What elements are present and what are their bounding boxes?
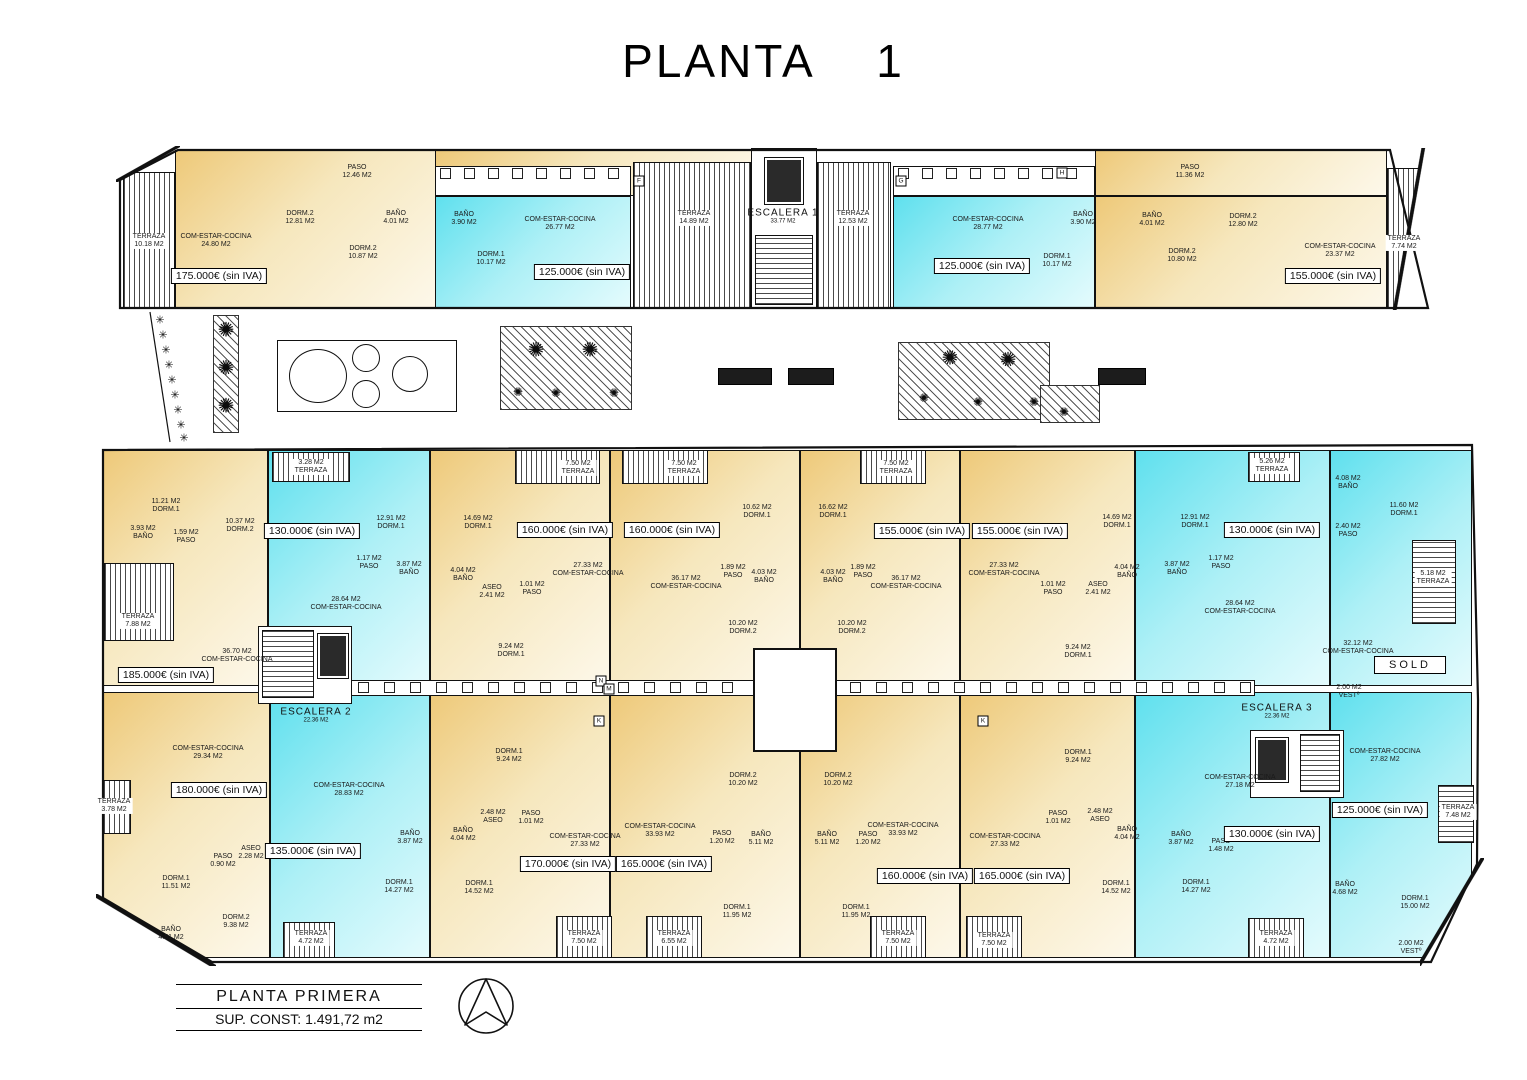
entrance-letter: G: [896, 176, 907, 187]
kitchen-unit: [536, 168, 547, 179]
legend-built-area: SUP. CONST: 1.491,72 m2: [176, 1009, 422, 1031]
kitchen-unit: [922, 168, 933, 179]
entrance-letter: H: [1057, 168, 1068, 179]
room-label: BAÑO 3.90 M2: [451, 211, 476, 227]
price-tag: 130.000€ (sin IVA): [1224, 522, 1320, 538]
elevator: [765, 158, 803, 204]
room-label: DORM.1 15.00 M2: [1400, 895, 1429, 911]
room-label: 4.03 M2 BAÑO: [820, 569, 845, 585]
kitchen-unit: [644, 682, 655, 693]
room-label: DORM.2 10.80 M2: [1167, 248, 1196, 264]
kitchen-unit: [850, 682, 861, 693]
price-tag: 165.000€ (sin IVA): [616, 856, 712, 872]
plant-icon: ✺: [919, 391, 929, 405]
room-label: 11.60 M2 DORM.1: [1390, 502, 1419, 518]
swing-toy: [289, 349, 347, 403]
price-tag: 155.000€ (sin IVA): [1285, 268, 1381, 284]
room-label: 1.01 M2 PASO: [519, 581, 544, 597]
room-label: DORM.1 10.17 M2: [1042, 253, 1071, 269]
room-label: TERRAZA 7.48 M2: [1440, 804, 1477, 820]
terrace-hatch: [817, 162, 891, 308]
kitchen-unit: [954, 682, 965, 693]
room-label: 36.70 M2 COM-ESTAR-COCINA: [201, 648, 272, 664]
stair-treads: [1300, 734, 1340, 792]
room-label: COM-ESTAR-COCINA 29.34 M2: [172, 745, 243, 761]
price-tag: 135.000€ (sin IVA): [265, 843, 361, 859]
room-label: BAÑO 4.01 M2: [383, 210, 408, 226]
room-label: BAÑO 5.11 M2: [749, 831, 774, 847]
price-tag: 160.000€ (sin IVA): [517, 522, 613, 538]
plant-icon: ✺: [582, 338, 599, 363]
bench: [788, 368, 834, 385]
room-label: DORM.1 9.24 M2: [495, 748, 522, 764]
room-label: 10.37 M2 DORM.2: [225, 518, 254, 534]
stair-area: 33.77 M2: [747, 219, 818, 225]
kitchen-unit: [1240, 682, 1251, 693]
kitchen-unit: [608, 168, 619, 179]
room-label: BAÑO 5.11 M2: [815, 831, 840, 847]
kitchen-unit: [540, 682, 551, 693]
kitchen-unit: [1084, 682, 1095, 693]
room-label: DORM.1 14.52 M2: [464, 880, 493, 896]
room-label: 4.08 M2 BAÑO: [1335, 475, 1360, 491]
price-tag: 170.000€ (sin IVA): [520, 856, 616, 872]
room-label: DORM.1 14.52 M2: [1101, 880, 1130, 896]
room-label: BAÑO 3.87 M2: [397, 830, 422, 846]
tree-icon: ✳: [155, 314, 164, 327]
tree-icon: ✳: [158, 329, 167, 342]
apartment-block: [270, 692, 430, 958]
floor-plan: TERRAZA 10.18 M2COM-ESTAR-COCINA 24.80 M…: [0, 0, 1527, 1080]
room-label: 27.33 M2 COM-ESTAR-COCINA: [552, 562, 623, 578]
room-label: COM-ESTAR-COCINA 27.33 M2: [549, 833, 620, 849]
entrance-letter: F: [634, 176, 645, 187]
room-label: TERRAZA 10.18 M2: [131, 233, 168, 249]
kitchen-unit: [928, 682, 939, 693]
courtyard: [753, 648, 837, 752]
room-label: PASO 1.01 M2: [1045, 810, 1070, 826]
bench: [1098, 368, 1146, 385]
kitchen-unit: [384, 682, 395, 693]
room-label: TERRAZA 3.78 M2: [96, 798, 133, 814]
price-tag: 160.000€ (sin IVA): [624, 522, 720, 538]
room-label: TERRAZA 7.50 M2: [880, 930, 917, 946]
plant-icon: ✺: [528, 338, 545, 363]
room-label: 36.17 M2 COM-ESTAR-COCINA: [650, 575, 721, 591]
room-label: 36.17 M2 COM-ESTAR-COCINA: [870, 575, 941, 591]
kitchen-unit: [902, 682, 913, 693]
corner-cut: [116, 146, 180, 182]
room-label: BAÑO 3.90 M2: [1070, 211, 1095, 227]
price-tag: 165.000€ (sin IVA): [974, 868, 1070, 884]
kitchen-unit: [1058, 682, 1069, 693]
room-label: ASEO 2.41 M2: [479, 584, 504, 600]
plant-icon: ✺: [218, 394, 235, 419]
terrace-hatch: [104, 563, 174, 641]
plant-icon: ✺: [551, 386, 561, 400]
price-tag: 180.000€ (sin IVA): [171, 782, 267, 798]
room-label: BAÑO 4.04 M2: [1114, 826, 1139, 842]
kitchen-unit: [1214, 682, 1225, 693]
room-label: DORM.2 10.87 M2: [348, 245, 377, 261]
plant-icon: ✺: [218, 356, 235, 381]
floor-title: PLANTA 1: [0, 34, 1527, 88]
room-label: 14.69 M2 DORM.1: [1102, 514, 1131, 530]
elevator: [318, 634, 348, 678]
price-tag: 125.000€ (sin IVA): [534, 264, 630, 280]
room-label: 12.91 M2 DORM.1: [1180, 514, 1209, 530]
room-label: 12.91 M2 DORM.1: [376, 515, 405, 531]
kitchen-unit: [980, 682, 991, 693]
room-label: 7.50 M2 TERRAZA: [878, 460, 915, 476]
kitchen-unit: [1188, 682, 1199, 693]
room-label: COM-ESTAR-COCINA 24.80 M2: [180, 233, 251, 249]
kitchen-unit: [440, 168, 451, 179]
room-label: 5.26 M2 TERRAZA: [1254, 458, 1291, 474]
kitchen-unit: [618, 682, 629, 693]
price-tag: 185.000€ (sin IVA): [118, 667, 214, 683]
kitchen-unit: [488, 168, 499, 179]
room-label: BAÑO 4.04 M2: [450, 827, 475, 843]
room-label: 3.87 M2 BAÑO: [396, 561, 421, 577]
stair-label: ESCALERA 322.36 M2: [1241, 703, 1312, 720]
plant-icon: ✺: [973, 395, 983, 409]
kitchen-unit: [1018, 168, 1029, 179]
kitchen-unit: [488, 682, 499, 693]
price-tag: 155.000€ (sin IVA): [874, 523, 970, 539]
room-label: BAÑO 4.01 M2: [1139, 212, 1164, 228]
room-label: 2.40 M2 PASO: [1335, 523, 1360, 539]
tree-icon: ✳: [170, 389, 179, 402]
room-label: PASO 11.36 M2: [1176, 164, 1205, 180]
plant-icon: ✺: [609, 386, 619, 400]
room-label: PASO 12.46 M2: [342, 164, 371, 180]
tree-icon: ✳: [179, 432, 188, 445]
room-label: 28.64 M2 COM-ESTAR-COCINA: [310, 596, 381, 612]
room-label: PASO 1.01 M2: [518, 810, 543, 826]
kitchen-unit: [560, 168, 571, 179]
kitchen-unit: [1032, 682, 1043, 693]
room-label: COM-ESTAR-COCINA 28.83 M2: [313, 782, 384, 798]
spring-toy: [352, 380, 380, 408]
corner-cut: [96, 894, 216, 966]
room-label: DORM.1 11.51 M2: [162, 875, 191, 891]
entrance-letter: M: [604, 684, 615, 695]
entrance-letter: K: [594, 716, 605, 727]
plant-icon: ✺: [218, 318, 235, 343]
room-label: 32.12 M2 COM-ESTAR-COCINA: [1322, 640, 1393, 656]
room-label: DORM.1 10.17 M2: [476, 251, 505, 267]
price-tag: 155.000€ (sin IVA): [972, 523, 1068, 539]
kitchen-unit: [970, 168, 981, 179]
kitchen-unit: [410, 682, 421, 693]
kitchen-unit: [464, 168, 475, 179]
room-label: COM-ESTAR-COCINA 27.82 M2: [1349, 748, 1420, 764]
room-label: 27.33 M2 COM-ESTAR-COCINA: [968, 562, 1039, 578]
room-label: TERRAZA 7.50 M2: [976, 932, 1013, 948]
stair-label: ESCALERA 222.36 M2: [280, 707, 351, 724]
room-label: TERRAZA 4.72 M2: [293, 930, 330, 946]
room-label: 1.01 M2 PASO: [1040, 581, 1065, 597]
tree-icon: ✳: [161, 344, 170, 357]
kitchen-unit: [994, 168, 1005, 179]
room-label: DORM.2 9.38 M2: [222, 914, 249, 930]
planter: [1040, 385, 1100, 423]
plant-icon: ✺: [513, 385, 523, 399]
price-tag: 130.000€ (sin IVA): [1224, 826, 1320, 842]
room-label: TERRAZA 7.88 M2: [120, 613, 157, 629]
room-label: DORM.1 9.24 M2: [1064, 749, 1091, 765]
kitchen-unit: [1136, 682, 1147, 693]
kitchen-unit: [696, 682, 707, 693]
room-label: DORM.2 12.80 M2: [1228, 213, 1257, 229]
kitchen-unit: [876, 682, 887, 693]
kitchen-unit: [1162, 682, 1173, 693]
room-label: 4.04 M2 BAÑO: [1114, 564, 1139, 580]
room-label: ASEO 2.41 M2: [1085, 581, 1110, 597]
stair-label: ESCALERA 133.77 M2: [747, 208, 818, 225]
kitchen-unit: [670, 682, 681, 693]
roundabout-toy: [392, 356, 428, 392]
terrace-hatch: [633, 162, 751, 308]
stair-area: 22.36 M2: [280, 718, 351, 724]
spring-toy: [352, 344, 380, 372]
kitchen-unit: [462, 682, 473, 693]
room-label: COM-ESTAR-COCINA 33.93 M2: [867, 822, 938, 838]
tree-icon: ✳: [173, 404, 182, 417]
room-label: COM-ESTAR-COCINA 27.18 M2: [1204, 774, 1275, 790]
sold-tag: SOLD: [1374, 656, 1446, 674]
room-label: PASO 1.20 M2: [709, 830, 734, 846]
price-tag: 130.000€ (sin IVA): [264, 523, 360, 539]
hall-block: [1095, 150, 1387, 196]
room-label: 1.17 M2 PASO: [1208, 555, 1233, 571]
bench: [718, 368, 772, 385]
kitchen-unit: [358, 682, 369, 693]
plant-icon: ✺: [1029, 395, 1039, 409]
legend: PLANTA PRIMERA SUP. CONST: 1.491,72 m2: [176, 984, 422, 1031]
room-label: 2.00 M2 VESTº: [1336, 684, 1361, 700]
room-label: 4.04 M2 BAÑO: [450, 567, 475, 583]
kitchen-unit: [514, 682, 525, 693]
room-label: DORM.1 11.95 M2: [723, 904, 752, 920]
room-label: TERRAZA 6.55 M2: [656, 930, 693, 946]
kitchen-unit: [512, 168, 523, 179]
tree-icon: ✳: [176, 419, 185, 432]
room-label: TERRAZA 7.74 M2: [1386, 235, 1423, 251]
kitchen-unit: [1110, 682, 1121, 693]
room-label: 1.17 M2 PASO: [356, 555, 381, 571]
room-label: TERRAZA 7.50 M2: [566, 930, 603, 946]
plant-icon: ✺: [1000, 348, 1017, 373]
room-label: PASO 0.90 M2: [210, 853, 235, 869]
apartment-block: [175, 150, 437, 308]
room-label: ASEO 2.28 M2: [238, 845, 263, 861]
room-label: BAÑO 4.51 M2: [158, 926, 183, 942]
kitchen-unit: [584, 168, 595, 179]
room-label: COM-ESTAR-COCINA 23.37 M2: [1304, 243, 1375, 259]
room-label: 10.62 M2 DORM.1: [742, 504, 771, 520]
room-label: DORM.2 10.20 M2: [823, 772, 852, 788]
tree-icon: ✳: [164, 359, 173, 372]
price-tag: 125.000€ (sin IVA): [1332, 802, 1428, 818]
room-label: DORM.2 12.81 M2: [285, 210, 314, 226]
kitchen-unit: [722, 682, 733, 693]
kitchen-unit: [1066, 168, 1077, 179]
room-label: 10.20 M2 DORM.2: [837, 620, 866, 636]
room-label: DORM.1 11.95 M2: [842, 904, 871, 920]
room-label: COM-ESTAR-COCINA 26.77 M2: [524, 216, 595, 232]
room-label: 9.24 M2 DORM.1: [1064, 644, 1091, 660]
room-label: 11.21 M2 DORM.1: [152, 498, 181, 514]
stair-area: 22.36 M2: [1241, 714, 1312, 720]
room-label: 2.48 M2 ASEO: [1087, 808, 1112, 824]
tree-icon: ✳: [167, 374, 176, 387]
room-label: 7.50 M2 TERRAZA: [560, 460, 597, 476]
room-label: COM-ESTAR-COCINA 27.33 M2: [969, 833, 1040, 849]
room-label: 1.59 M2 PASO: [173, 529, 198, 545]
room-label: TERRAZA 4.72 M2: [1258, 930, 1295, 946]
corner-cut: [1420, 858, 1484, 966]
room-label: 7.50 M2 TERRAZA: [666, 460, 703, 476]
room-label: BAÑO 4.68 M2: [1332, 881, 1357, 897]
kitchen-unit: [946, 168, 957, 179]
price-tag: 125.000€ (sin IVA): [934, 258, 1030, 274]
room-label: 5.18 M2 TERRAZA: [1415, 570, 1452, 586]
plant-icon: ✺: [1059, 405, 1069, 419]
room-label: DORM.1 14.27 M2: [1181, 879, 1210, 895]
room-label: 4.03 M2 BAÑO: [751, 569, 776, 585]
stair-treads: [755, 235, 813, 305]
kitchen-unit: [1006, 682, 1017, 693]
room-label: 16.62 M2 DORM.1: [818, 504, 847, 520]
room-label: TERRAZA 14.89 M2: [676, 210, 713, 226]
stair-name: ESCALERA 1: [747, 208, 818, 219]
room-label: 1.89 M2 PASO: [720, 564, 745, 580]
room-label: 3.28 M2 TERRAZA: [293, 459, 330, 475]
room-label: COM-ESTAR-COCINA 28.77 M2: [952, 216, 1023, 232]
stair-name: ESCALERA 2: [280, 707, 351, 718]
price-tag: 160.000€ (sin IVA): [877, 868, 973, 884]
room-label: 28.64 M2 COM-ESTAR-COCINA: [1204, 600, 1275, 616]
room-label: 3.93 M2 BAÑO: [130, 525, 155, 541]
room-label: 3.87 M2 BAÑO: [1164, 561, 1189, 577]
room-label: 2.48 M2 ASEO: [480, 809, 505, 825]
room-label: 9.24 M2 DORM.1: [497, 643, 524, 659]
kitchen-unit: [566, 682, 577, 693]
stair-name: ESCALERA 3: [1241, 703, 1312, 714]
room-label: TERRAZA 12.53 M2: [835, 210, 872, 226]
compass-icon: [455, 975, 517, 1037]
corner-cut: [1386, 148, 1432, 310]
legend-floor-name: PLANTA PRIMERA: [176, 984, 422, 1009]
room-label: 14.69 M2 DORM.1: [463, 515, 492, 531]
price-tag: 175.000€ (sin IVA): [171, 268, 267, 284]
plant-icon: ✺: [942, 346, 959, 371]
kitchen-unit: [1042, 168, 1053, 179]
room-label: DORM.2 10.20 M2: [728, 772, 757, 788]
room-label: 10.20 M2 DORM.2: [728, 620, 757, 636]
room-label: 2.00 M2 VESTº: [1398, 940, 1423, 956]
room-label: BAÑO 3.87 M2: [1168, 831, 1193, 847]
room-label: COM-ESTAR-COCINA 33.93 M2: [624, 823, 695, 839]
entrance-letter: K: [978, 716, 989, 727]
room-label: DORM.1 14.27 M2: [384, 879, 413, 895]
kitchen-unit: [436, 682, 447, 693]
